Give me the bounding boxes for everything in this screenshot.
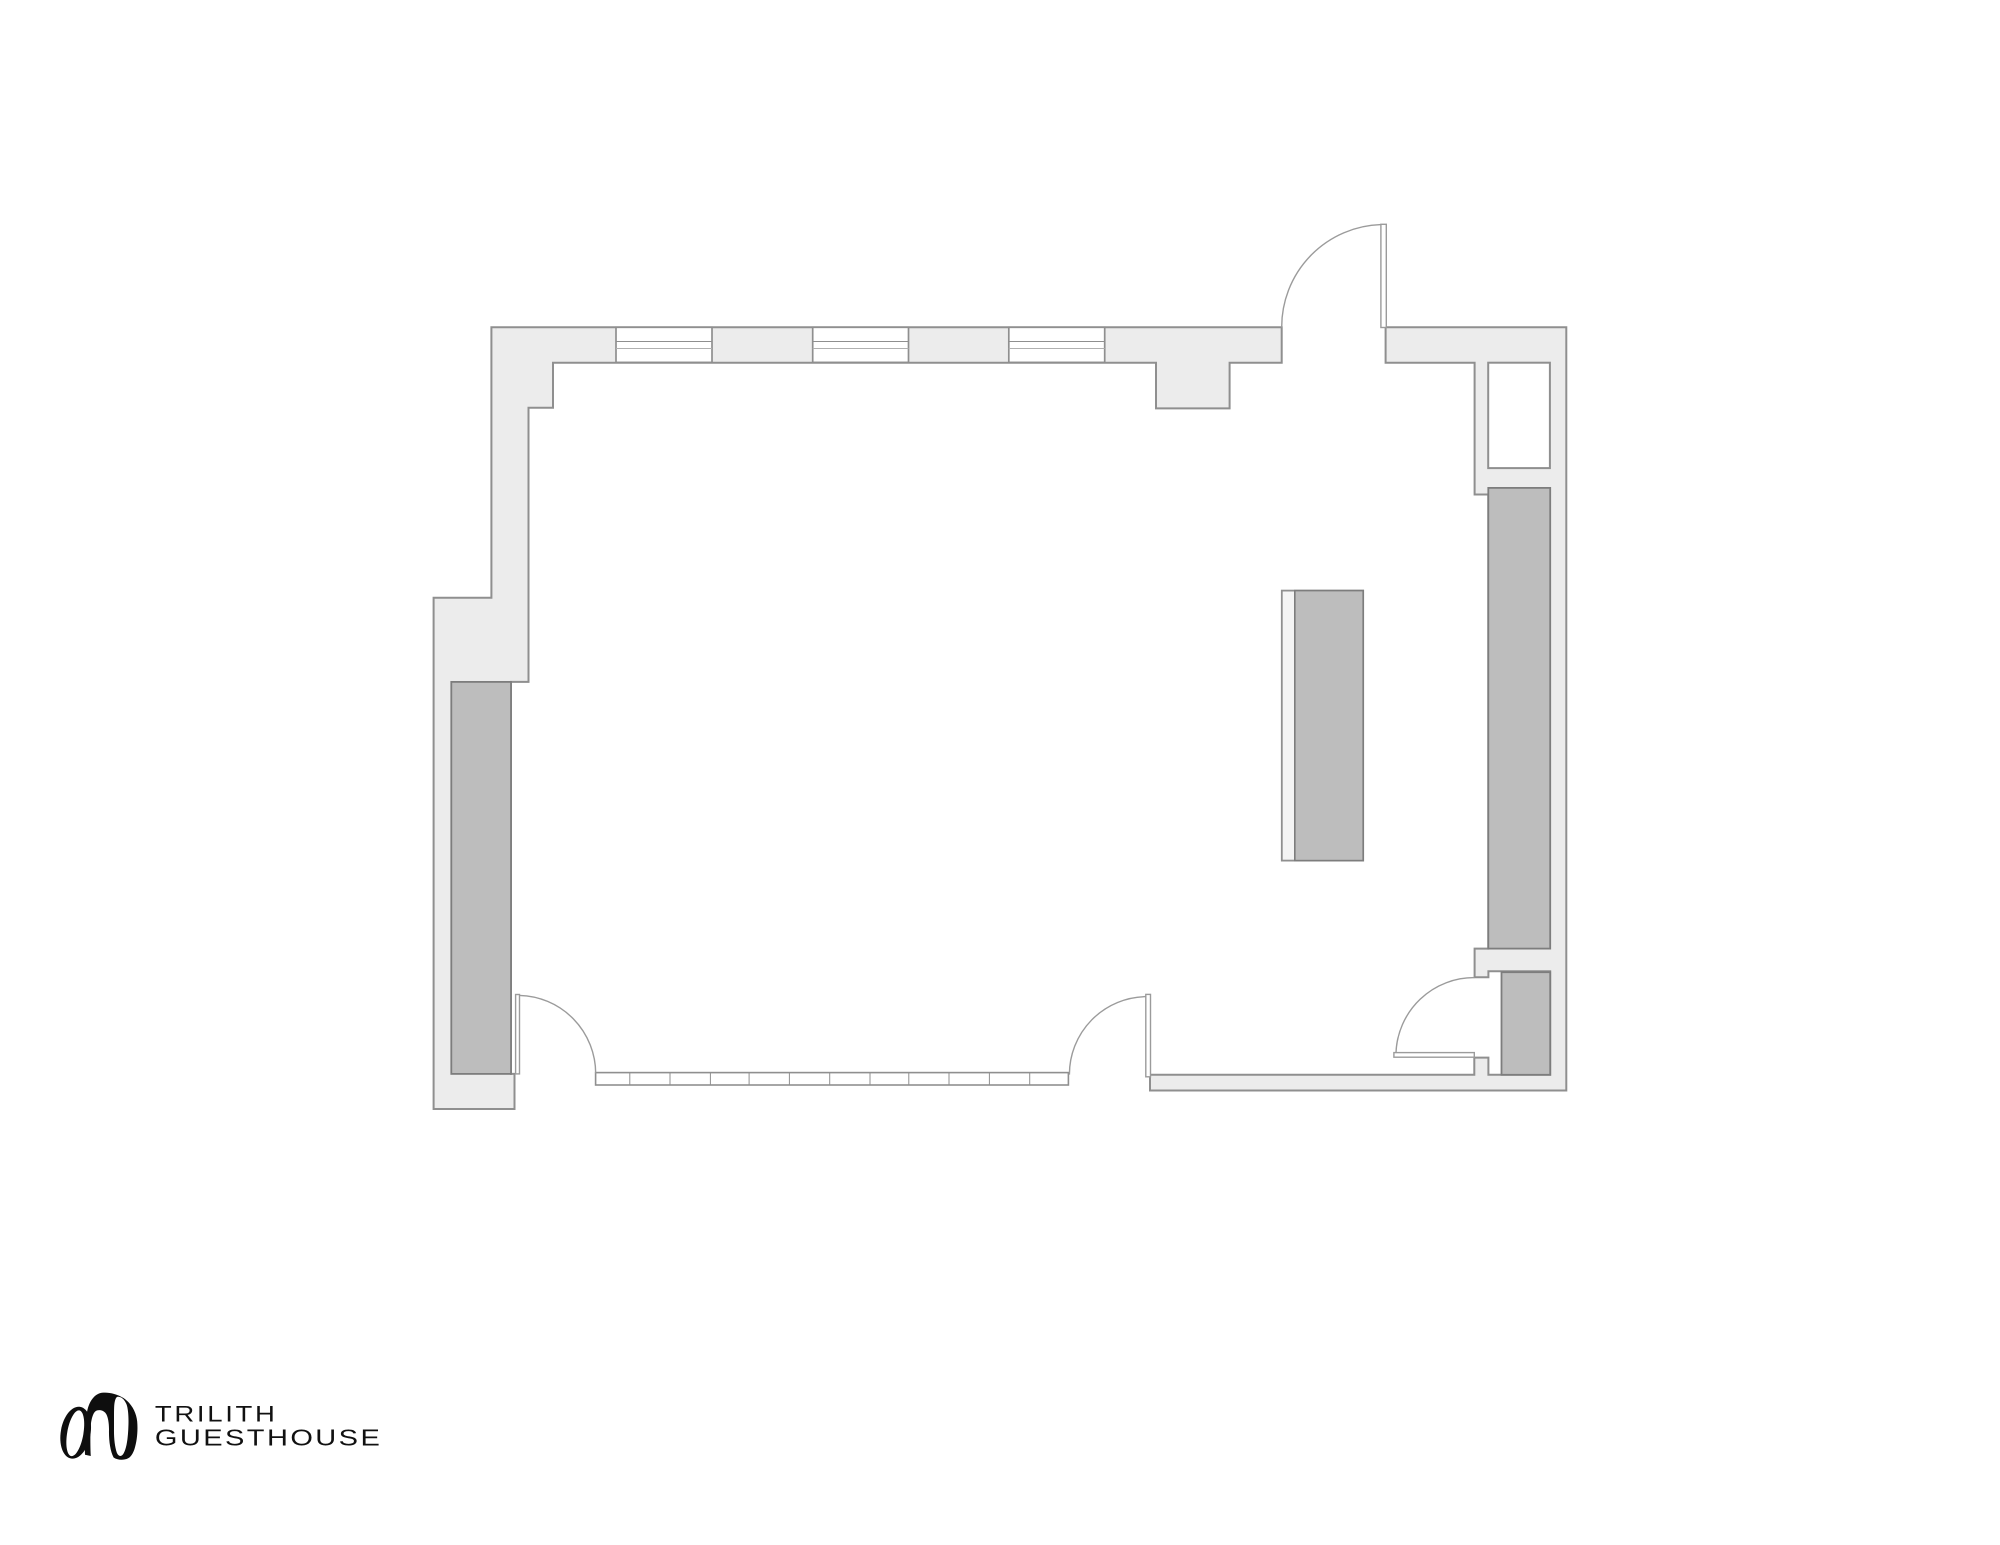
svg-text:GUESTHOUSE: GUESTHOUSE: [155, 1424, 382, 1451]
